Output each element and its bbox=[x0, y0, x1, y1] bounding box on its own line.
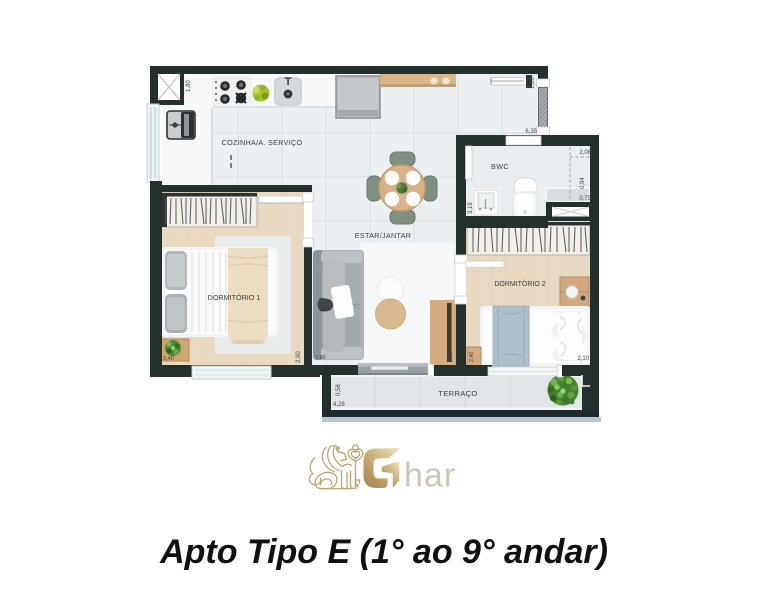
svg-text:har: har bbox=[404, 457, 456, 495]
svg-text:TERRAÇO: TERRAÇO bbox=[438, 389, 477, 398]
svg-text:2,90: 2,90 bbox=[296, 351, 302, 363]
svg-text:2,10: 2,10 bbox=[577, 356, 589, 362]
svg-text:1,80: 1,80 bbox=[186, 80, 192, 92]
svg-text:2,40: 2,40 bbox=[163, 356, 174, 362]
svg-text:2,40: 2,40 bbox=[469, 352, 475, 362]
svg-text:DORMITÓRIO 1: DORMITÓRIO 1 bbox=[208, 293, 261, 302]
svg-text:0,73: 0,73 bbox=[579, 196, 591, 202]
svg-text:Apto Tipo E (1° ao 9° andar): Apto Tipo E (1° ao 9° andar) bbox=[159, 533, 608, 571]
svg-text:1,85: 1,85 bbox=[448, 352, 454, 362]
svg-text:3,19: 3,19 bbox=[468, 202, 474, 214]
svg-text:6,35: 6,35 bbox=[525, 129, 537, 135]
svg-text:2,90: 2,90 bbox=[315, 355, 326, 361]
svg-text:ESTAR/JANTAR: ESTAR/JANTAR bbox=[355, 231, 411, 240]
svg-text:BWC: BWC bbox=[491, 162, 509, 171]
svg-text:2,08: 2,08 bbox=[579, 150, 591, 156]
svg-text:DORMITÓRIO 2: DORMITÓRIO 2 bbox=[494, 279, 545, 288]
svg-text:4,28: 4,28 bbox=[333, 402, 345, 408]
svg-text:0,58: 0,58 bbox=[336, 384, 342, 396]
svg-text:1,00: 1,00 bbox=[530, 77, 536, 89]
svg-text:COZINHA/A. SERVIÇO: COZINHA/A. SERVIÇO bbox=[222, 138, 303, 147]
svg-text:0,94: 0,94 bbox=[580, 177, 586, 189]
